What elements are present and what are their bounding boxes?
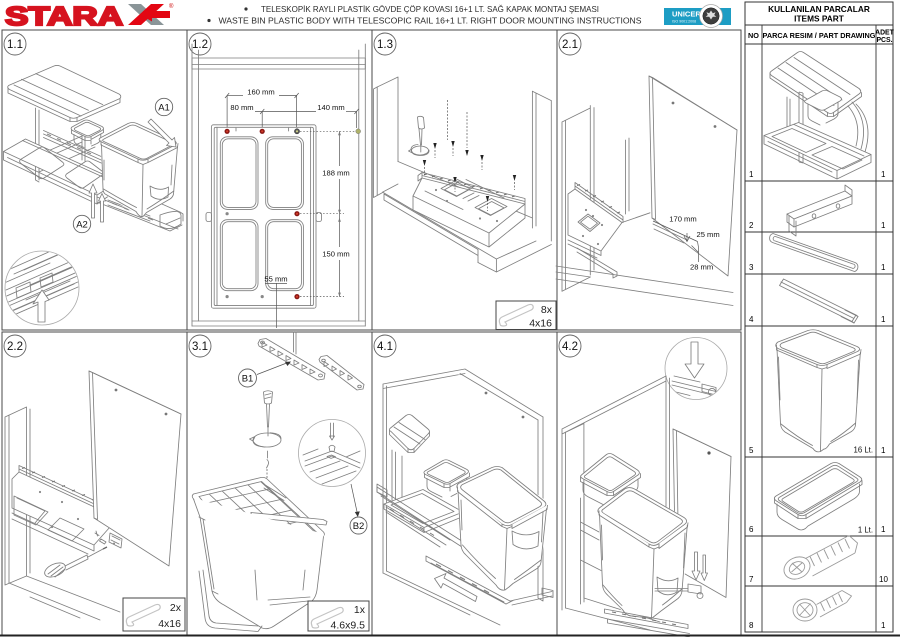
svg-text:PARCA RESIM / PART DRAWING: PARCA RESIM / PART DRAWING [763,31,876,40]
svg-text:8: 8 [749,621,754,630]
svg-text:28 mm: 28 mm [690,263,713,272]
svg-text:1: 1 [881,315,886,324]
svg-text:A1: A1 [158,103,170,114]
svg-text:4x16: 4x16 [529,318,552,330]
svg-text:4.1: 4.1 [377,341,393,353]
svg-text:WASTE BIN PLASTIC BODY WITH TE: WASTE BIN PLASTIC BODY WITH TELESCOPIC R… [219,16,642,26]
svg-text:5: 5 [749,446,754,455]
svg-text:4.2: 4.2 [562,341,578,353]
svg-text:2: 2 [749,221,754,230]
svg-text:188 mm: 188 mm [322,169,349,178]
svg-text:4x16: 4x16 [158,618,181,630]
svg-text:ISO 9001:2008: ISO 9001:2008 [672,20,696,24]
svg-text:2.1: 2.1 [562,39,578,51]
svg-text:ITEMS PART: ITEMS PART [794,13,844,23]
svg-text:6: 6 [749,525,754,534]
svg-text:160 mm: 160 mm [247,88,274,97]
svg-text:7: 7 [749,575,754,584]
svg-text:1.1: 1.1 [7,39,23,51]
svg-text:55 mm: 55 mm [264,275,287,284]
svg-text:140 mm: 140 mm [317,103,344,112]
svg-text:PCS.: PCS. [876,37,892,44]
svg-text:ADET: ADET [875,30,895,37]
svg-text:1.3: 1.3 [377,39,393,51]
svg-text:B2: B2 [353,521,365,532]
svg-text:A2: A2 [76,220,88,231]
svg-text:1x: 1x [354,604,366,616]
svg-text:1: 1 [881,170,886,179]
svg-text:4: 4 [749,315,754,324]
svg-text:®: ® [169,3,174,10]
svg-text:170 mm: 170 mm [669,215,696,224]
svg-text:1: 1 [881,263,886,272]
svg-text:1: 1 [749,170,754,179]
svg-text:1.2: 1.2 [192,39,208,51]
svg-text:25 mm: 25 mm [697,230,720,239]
svg-text:3.1: 3.1 [192,341,208,353]
svg-text:1: 1 [881,221,886,230]
svg-text:1: 1 [881,446,886,455]
svg-text:2x: 2x [170,602,182,614]
svg-text:NO: NO [748,31,759,40]
svg-text:1: 1 [881,525,886,534]
svg-text:150 mm: 150 mm [322,250,349,259]
svg-text:8x: 8x [541,304,553,316]
svg-text:1: 1 [881,621,886,630]
svg-text:2.2: 2.2 [7,341,23,353]
svg-text:4.6x9.5: 4.6x9.5 [331,620,366,632]
svg-text:3: 3 [749,263,754,272]
svg-text:1 Lt.: 1 Lt. [858,526,873,535]
svg-text:B1: B1 [242,374,254,385]
svg-text:STARA: STARA [5,1,123,31]
svg-text:KULLANILAN PARCALAR: KULLANILAN PARCALAR [768,4,870,14]
svg-text:10: 10 [879,575,888,584]
svg-text:80 mm: 80 mm [230,103,253,112]
svg-text:TELESKOPİK RAYLI PLASTİK GÖVDE: TELESKOPİK RAYLI PLASTİK GÖVDE ÇÖP KOVAS… [261,4,599,14]
svg-text:16 Lt.: 16 Lt. [853,446,873,455]
